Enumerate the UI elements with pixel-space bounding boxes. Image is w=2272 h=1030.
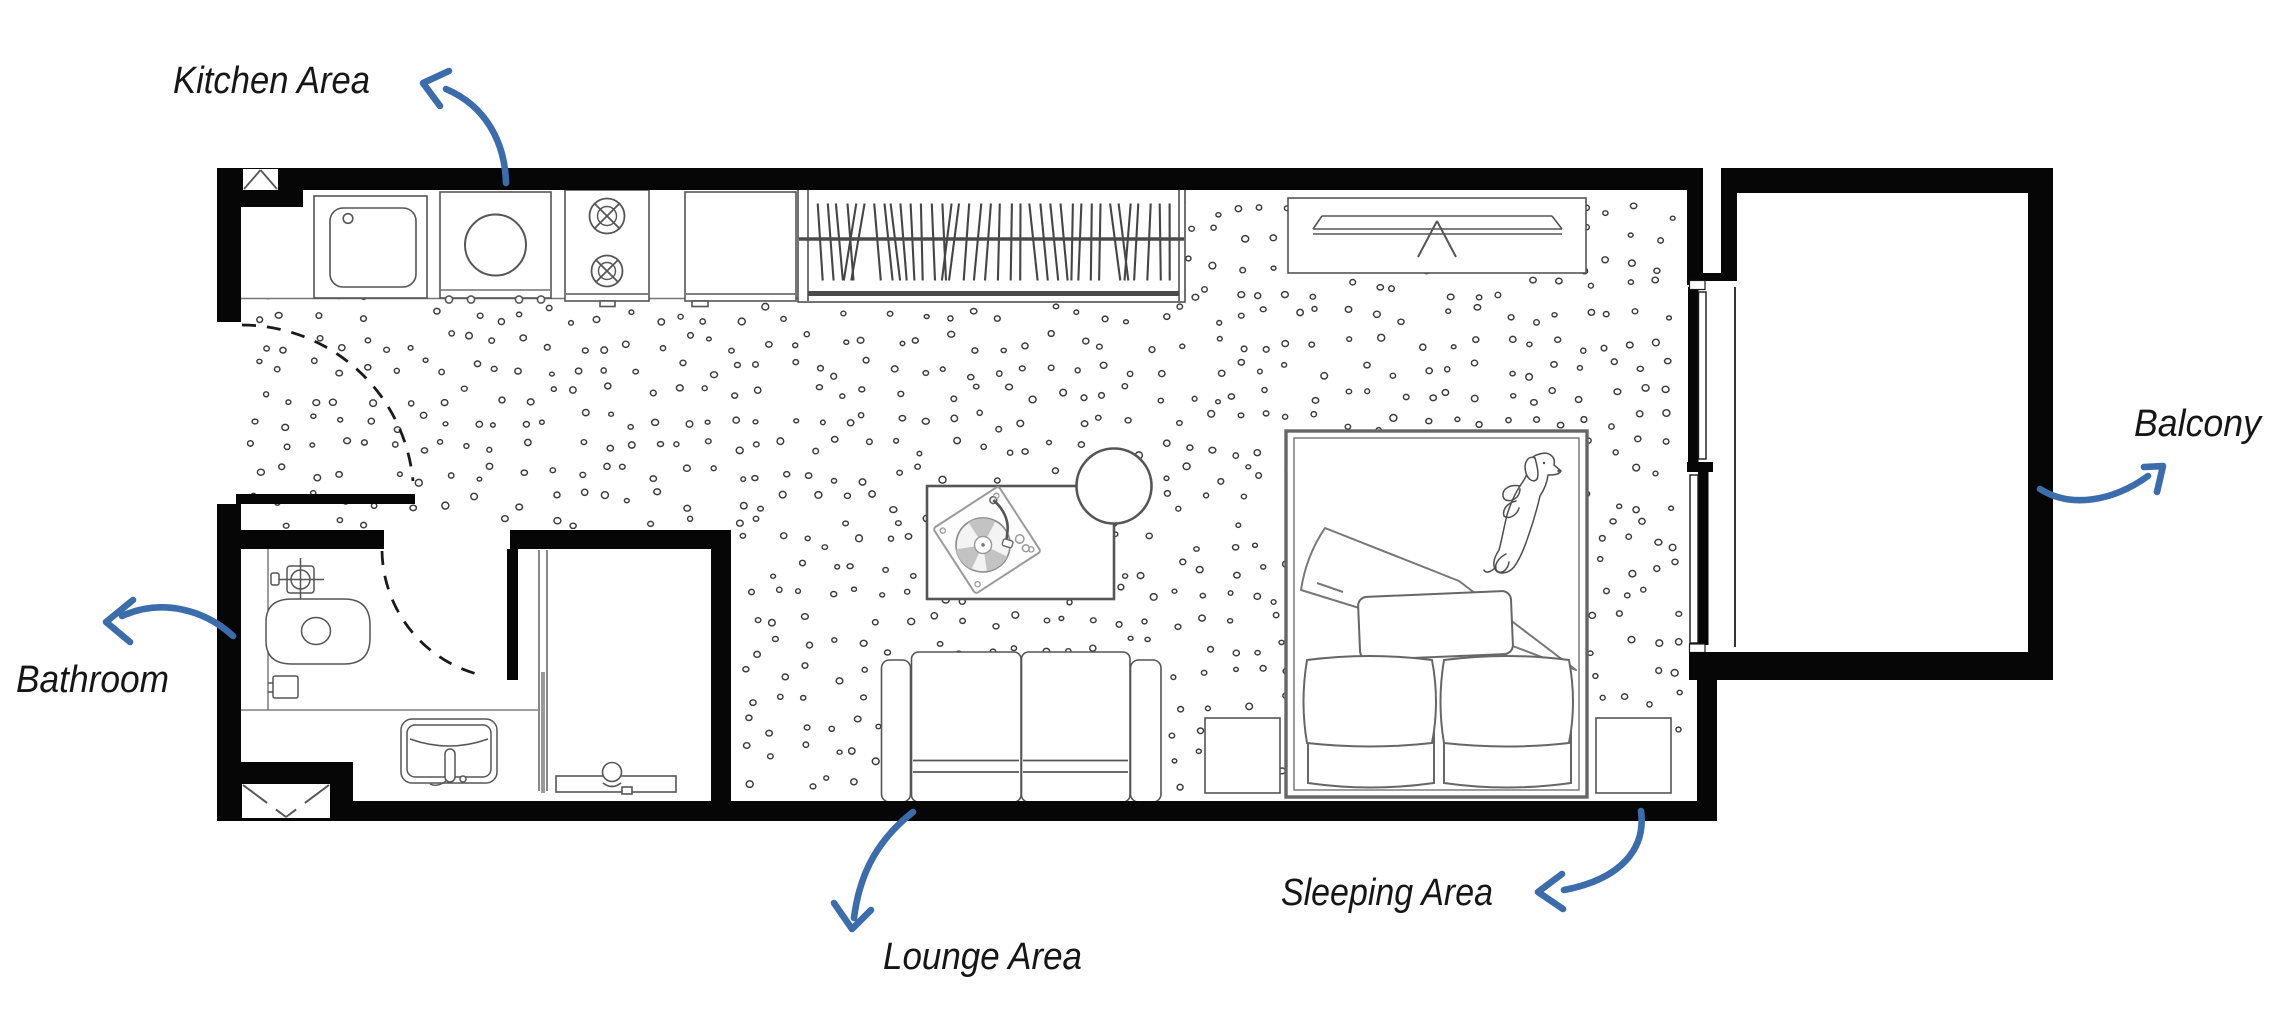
svg-text:Balcony: Balcony <box>2134 403 2263 445</box>
svg-text:Lounge Area: Lounge Area <box>883 936 1082 978</box>
svg-text:Kitchen Area: Kitchen Area <box>173 60 370 102</box>
svg-text:Bathroom: Bathroom <box>16 659 169 701</box>
svg-text:Sleeping Area: Sleeping Area <box>1281 872 1493 914</box>
